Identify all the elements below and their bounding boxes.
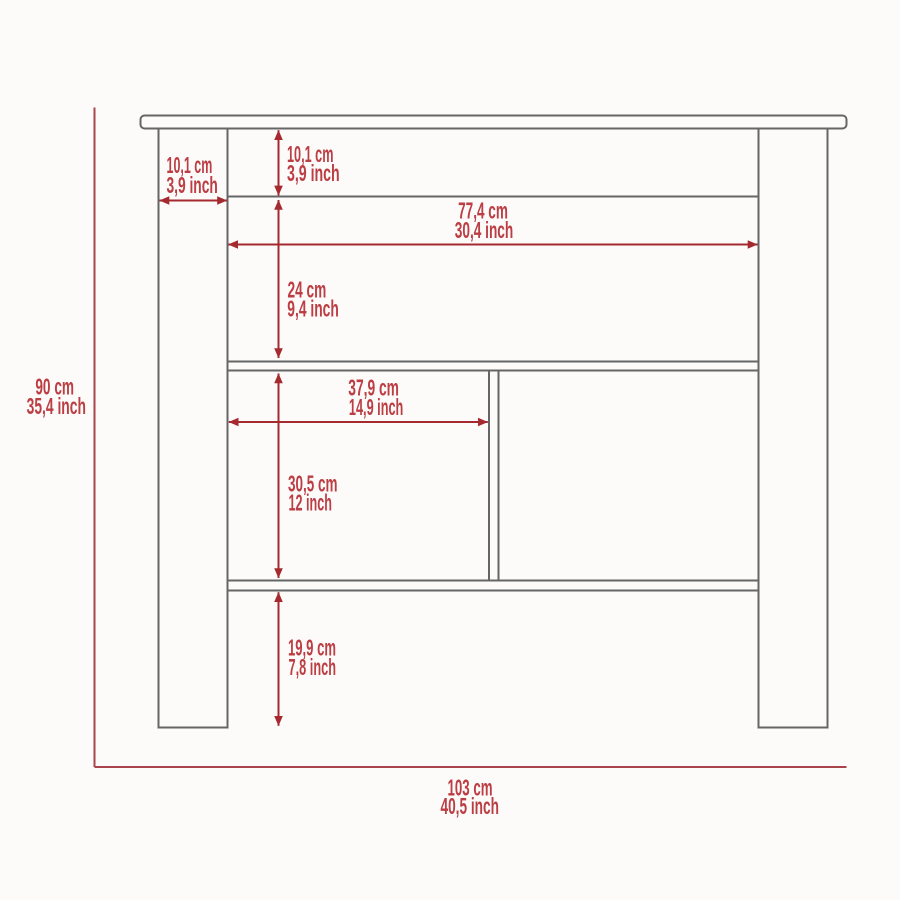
svg-text:3,9 inch: 3,9 inch [287,160,340,186]
svg-text:9,4 inch: 9,4 inch [287,296,339,322]
svg-text:3,9 inch: 3,9 inch [167,172,218,198]
svg-text:30,4 inch: 30,4 inch [455,217,514,243]
svg-text:40,5 inch: 40,5 inch [441,793,499,819]
svg-text:35,4 inch: 35,4 inch [27,393,86,419]
svg-text:14,9 inch: 14,9 inch [349,394,403,420]
svg-text:12 inch: 12 inch [289,490,333,516]
svg-text:7,8 inch: 7,8 inch [289,654,337,680]
